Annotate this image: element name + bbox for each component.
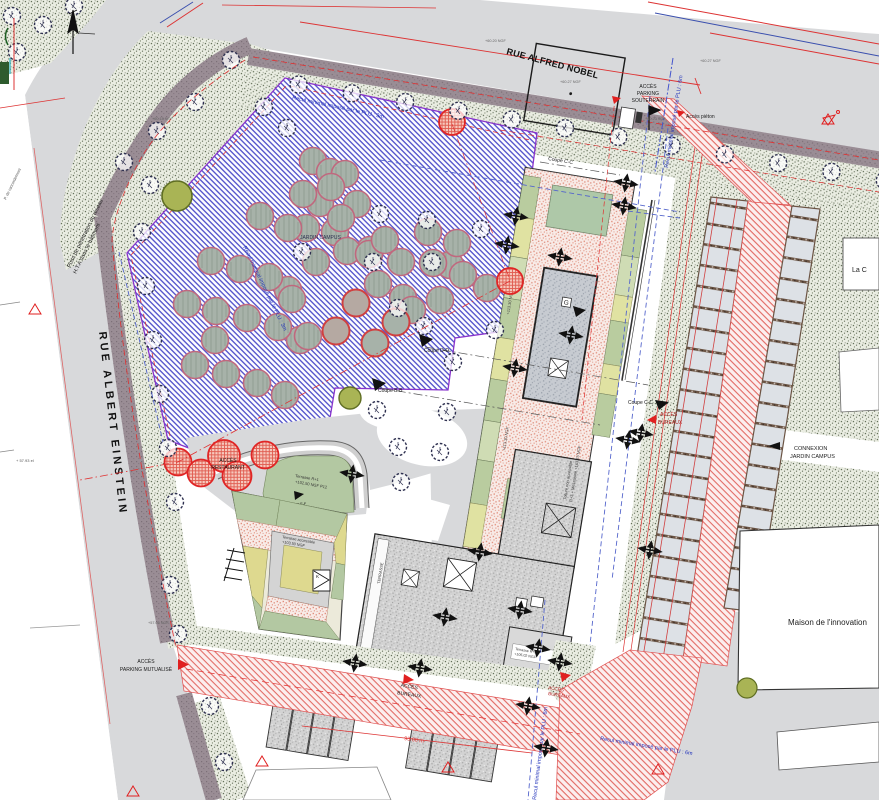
svg-text:Coupe B-B: Coupe B-B xyxy=(378,388,403,394)
svg-text:ACCÈS: ACCÈS xyxy=(137,658,155,665)
svg-text:Coupe D-D: Coupe D-D xyxy=(424,348,449,354)
svg-text:+60.27 NGF: +60.27 NGF xyxy=(560,80,581,84)
svg-text:Maison de l'innovation: Maison de l'innovation xyxy=(788,618,867,627)
svg-text:ACCÈS: ACCÈS xyxy=(660,411,678,418)
svg-text:RESTAURANT: RESTAURANT xyxy=(211,465,245,471)
svg-text:PARKING: PARKING xyxy=(637,91,659,97)
svg-text:+60.20 NGF: +60.20 NGF xyxy=(485,39,506,43)
svg-text:Coupe C-C: Coupe C-C xyxy=(628,400,653,406)
svg-text:BUREAUX: BUREAUX xyxy=(658,420,683,426)
svg-text:JARDIN CAMPUS: JARDIN CAMPUS xyxy=(300,235,342,241)
svg-text:La C: La C xyxy=(852,267,867,274)
svg-text:+57.05 NGF: +57.05 NGF xyxy=(148,621,169,625)
svg-text:JARDIN CAMPUS: JARDIN CAMPUS xyxy=(790,454,835,460)
svg-text:+ 57.93 el: + 57.93 el xyxy=(16,458,34,463)
svg-text:CONNEXION: CONNEXION xyxy=(794,446,827,452)
svg-text:ACCÈS: ACCÈS xyxy=(639,83,657,90)
svg-text:Accès piéton: Accès piéton xyxy=(686,114,715,120)
svg-text:ACCÈS: ACCÈS xyxy=(219,457,237,464)
svg-text:PARKING MUTUALISÉ: PARKING MUTUALISÉ xyxy=(120,666,173,673)
svg-text:SOUTERRAIN: SOUTERRAIN xyxy=(632,98,665,104)
svg-text:+60.27 NGF: +60.27 NGF xyxy=(700,59,721,63)
svg-text:+60.18 NGF: +60.18 NGF xyxy=(152,117,173,121)
svg-text:+60.20 NGF: +60.20 NGF xyxy=(645,117,666,121)
svg-text:K: K xyxy=(316,574,319,579)
